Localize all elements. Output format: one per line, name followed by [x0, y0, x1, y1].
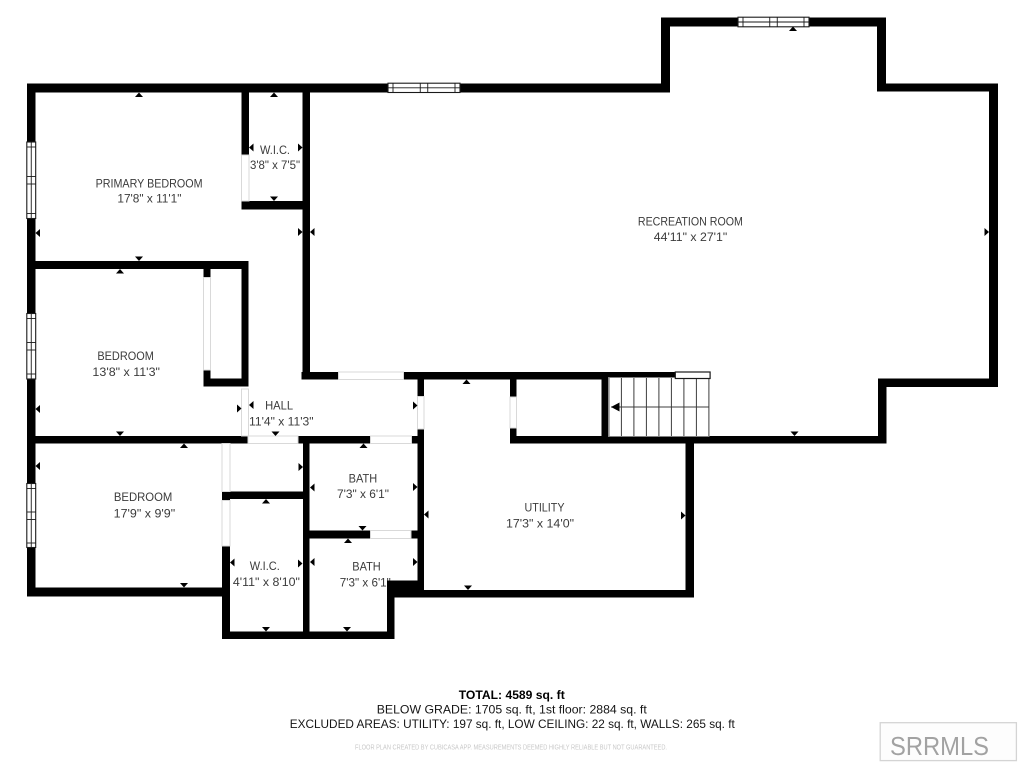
svg-text:EXCLUDED AREAS: UTILITY: 197 s: EXCLUDED AREAS: UTILITY: 197 sq. ft, LOW… — [290, 717, 736, 731]
svg-text:HALL: HALL — [265, 400, 294, 412]
svg-text:44'11" x 27'1": 44'11" x 27'1" — [654, 232, 728, 244]
svg-text:3'8" x 7'5": 3'8" x 7'5" — [250, 160, 300, 172]
svg-text:17'3" x 14'0": 17'3" x 14'0" — [506, 519, 574, 531]
svg-text:SRRMLS: SRRMLS — [890, 731, 989, 761]
svg-text:BATH: BATH — [349, 474, 378, 486]
svg-text:17'8" x 11'1": 17'8" x 11'1" — [117, 194, 181, 206]
svg-text:RECREATION ROOM: RECREATION ROOM — [638, 216, 743, 228]
svg-text:W.I.C.: W.I.C. — [260, 145, 290, 157]
svg-text:11'4" x 11'3": 11'4" x 11'3" — [249, 417, 314, 429]
svg-text:BELOW GRADE: 1705 sq. ft, 1st: BELOW GRADE: 1705 sq. ft, 1st floor: 288… — [377, 703, 648, 717]
svg-text:FLOOR PLAN CREATED BY CUBICASA: FLOOR PLAN CREATED BY CUBICASA APP. MEAS… — [355, 743, 667, 752]
svg-text:TOTAL: 4589 sq. ft: TOTAL: 4589 sq. ft — [459, 688, 565, 702]
svg-text:13'8" x 11'3": 13'8" x 11'3" — [92, 367, 160, 379]
svg-text:W.I.C.: W.I.C. — [250, 561, 280, 573]
svg-text:4'11" x 8'10": 4'11" x 8'10" — [233, 577, 300, 589]
svg-text:17'9" x 9'9": 17'9" x 9'9" — [114, 509, 176, 521]
svg-text:BEDROOM: BEDROOM — [97, 351, 154, 363]
svg-text:BATH: BATH — [352, 562, 381, 574]
svg-text:7'3" x 6'1": 7'3" x 6'1" — [337, 489, 389, 501]
svg-text:7'3" x 6'1": 7'3" x 6'1" — [340, 578, 391, 590]
svg-text:UTILITY: UTILITY — [525, 503, 565, 515]
svg-text:BEDROOM: BEDROOM — [114, 492, 173, 504]
svg-text:PRIMARY BEDROOM: PRIMARY BEDROOM — [96, 179, 203, 191]
